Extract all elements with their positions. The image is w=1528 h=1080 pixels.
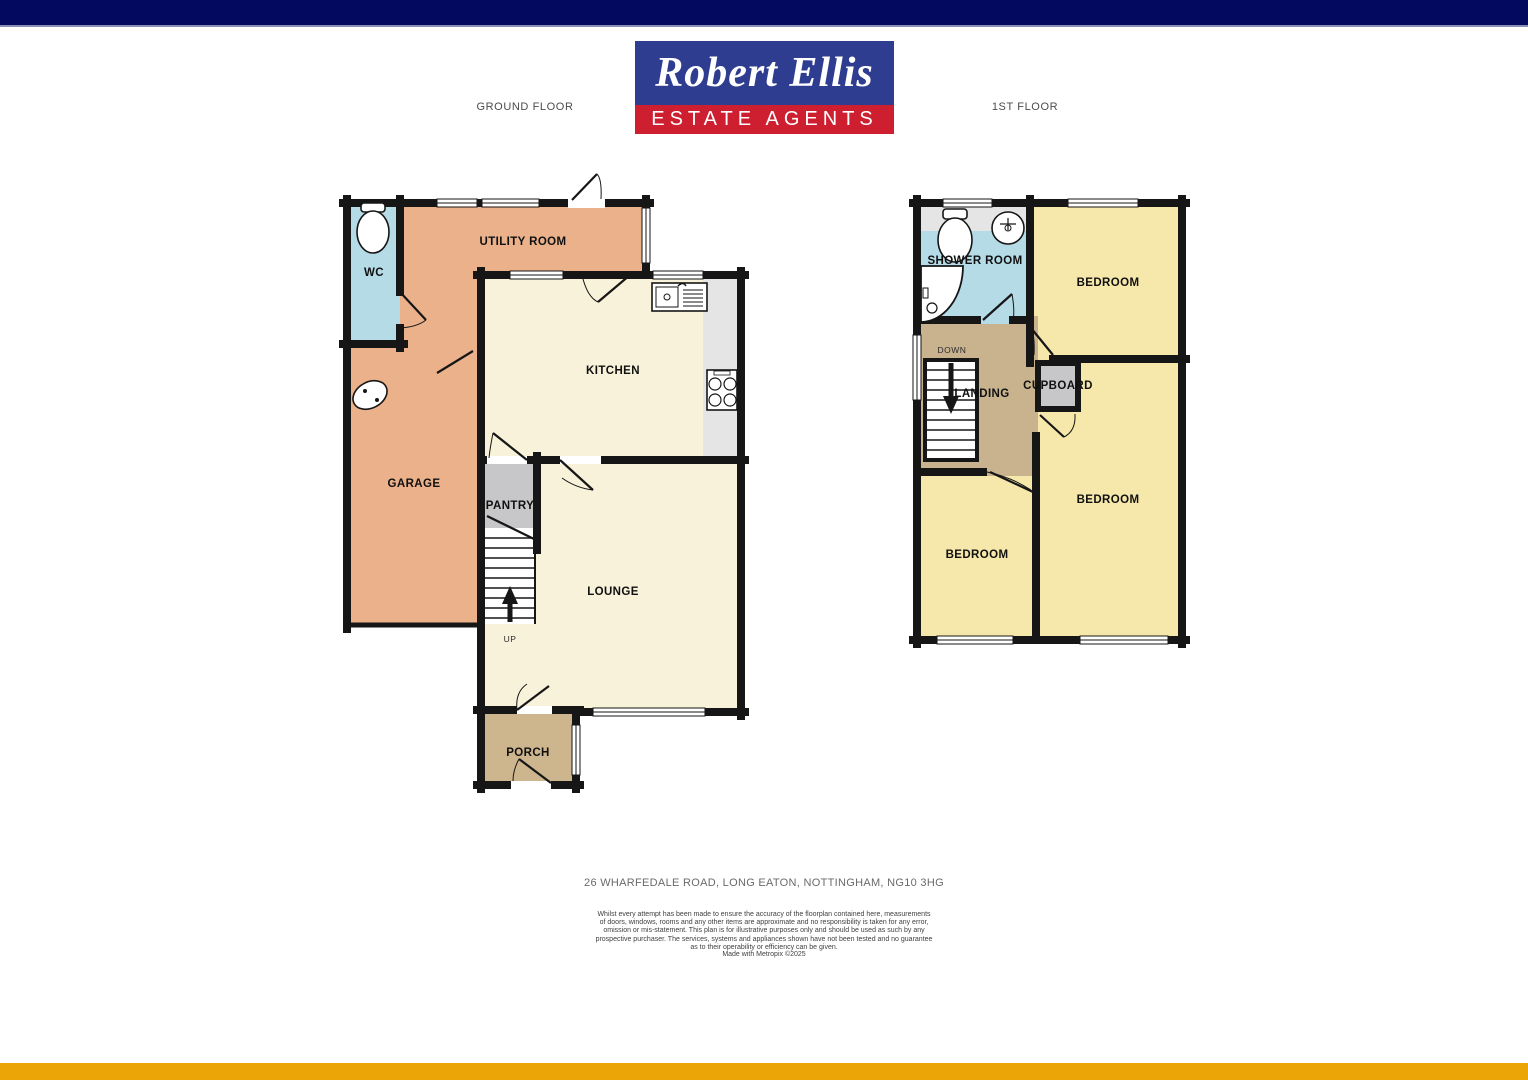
- room-label-bedroom-left: BEDROOM: [946, 549, 1009, 561]
- logo-brand-name: Robert Ellis: [655, 49, 874, 97]
- logo-name-panel: Robert Ellis: [635, 41, 894, 105]
- room-label-pantry: PANTRY: [486, 500, 534, 512]
- room-label-garage: GARAGE: [388, 478, 441, 490]
- room-label-porch: PORCH: [506, 747, 550, 759]
- wc-toilet-icon: [357, 203, 389, 253]
- room-label-bedroom-top: BEDROOM: [1077, 277, 1140, 289]
- room-label-bedroom-right: BEDROOM: [1077, 494, 1140, 506]
- logo-tagline: ESTATE AGENTS: [651, 108, 878, 131]
- bottom-amber-bar: [0, 1063, 1528, 1080]
- disclaimer-text: Whilst every attempt has been made to en…: [594, 911, 934, 952]
- floorplan-page: Robert Ellis ESTATE AGENTS GROUND FLOOR …: [0, 0, 1528, 1080]
- first-floor-label: 1ST FLOOR: [925, 101, 1125, 113]
- stairs-up-label: UP: [504, 634, 517, 644]
- ground-floor-label: GROUND FLOOR: [425, 101, 625, 113]
- room-label-shower: SHOWER ROOM: [927, 255, 1022, 267]
- ground-floor-plan: WC UTILITY ROOM KITCHEN GARAGE PANTRY LO…: [335, 170, 760, 820]
- logo-tagline-panel: ESTATE AGENTS: [635, 105, 894, 134]
- property-address: 26 WHARFEDALE ROAD, LONG EATON, NOTTINGH…: [0, 877, 1528, 889]
- room-label-wc: WC: [364, 267, 384, 279]
- metropix-credit: Made with Metropix ©2025: [594, 951, 934, 959]
- first-stairs: [925, 360, 977, 460]
- first-floor-graphic: [905, 170, 1195, 660]
- first-floor-plan: SHOWER ROOM BEDROOM DOWN LANDING CUPBOAR…: [905, 170, 1195, 660]
- estate-agent-logo: Robert Ellis ESTATE AGENTS: [635, 41, 894, 134]
- stairs-down-label: DOWN: [938, 345, 967, 355]
- room-label-landing: LANDING: [954, 388, 1009, 400]
- room-label-cupboard: CUPBOARD: [1023, 380, 1093, 392]
- shower-sink-icon: [992, 212, 1024, 244]
- room-label-lounge: LOUNGE: [587, 586, 639, 598]
- room-label-utility: UTILITY ROOM: [479, 236, 566, 248]
- hob-icon: [707, 370, 737, 410]
- ground-floor-graphic: [335, 170, 760, 820]
- top-navy-bar: [0, 0, 1528, 27]
- kitchen-sink-icon: [652, 283, 707, 311]
- room-label-kitchen: KITCHEN: [586, 365, 640, 377]
